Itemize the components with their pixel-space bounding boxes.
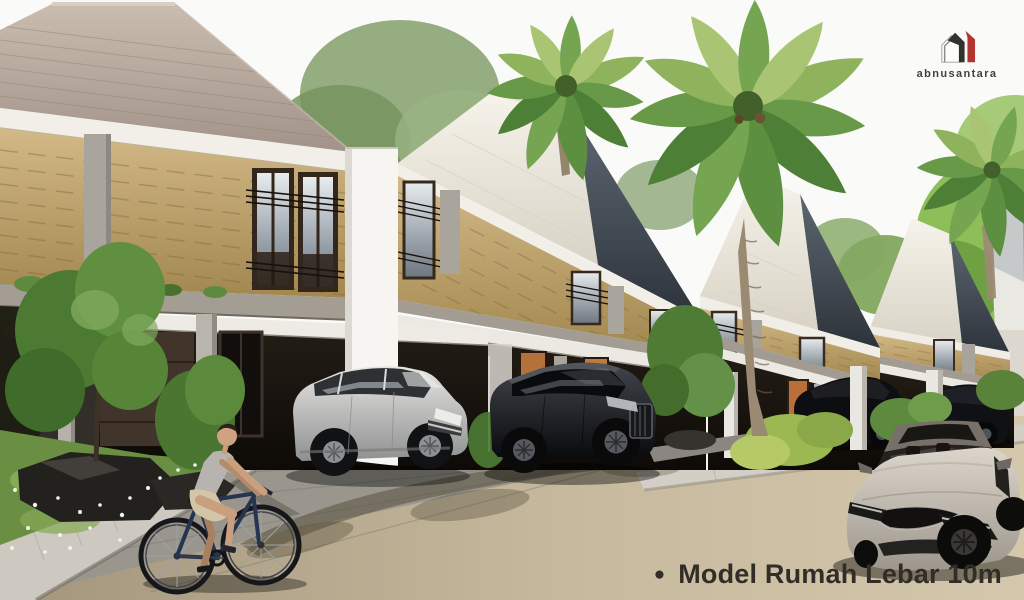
logo-house-icon — [934, 28, 980, 66]
pilaster — [962, 344, 975, 376]
garden-rocks — [664, 430, 716, 450]
coconut — [755, 113, 766, 124]
window — [404, 182, 434, 278]
coconut — [735, 115, 744, 124]
caption: ● Model Rumah Lebar 10m — [654, 559, 1002, 590]
logo-house-red — [966, 31, 976, 62]
caption-text: Model Rumah Lebar 10m — [678, 559, 1002, 590]
bush — [797, 412, 853, 448]
watermark-logo: abnusantara — [914, 28, 1000, 80]
scene-render — [0, 0, 1024, 600]
black-suv — [484, 363, 660, 485]
bush — [730, 434, 790, 470]
crown-center — [555, 75, 577, 97]
render-image: abnusantara ● Model Rumah Lebar 10m — [0, 0, 1024, 600]
pilaster — [440, 190, 460, 274]
crown-center — [983, 161, 1000, 178]
front-shin — [228, 514, 232, 548]
wheel-spokes — [606, 432, 626, 452]
watermark-brand-text: abnusantara — [917, 68, 998, 80]
neck — [224, 446, 226, 454]
column-shade — [862, 366, 867, 450]
wheel-spokes — [953, 531, 975, 553]
bush — [185, 355, 245, 425]
pilaster — [608, 286, 624, 334]
car-shadow — [286, 465, 470, 487]
tree-foliage — [5, 348, 85, 432]
bush — [908, 392, 952, 424]
caption-bullet: ● — [654, 565, 665, 584]
